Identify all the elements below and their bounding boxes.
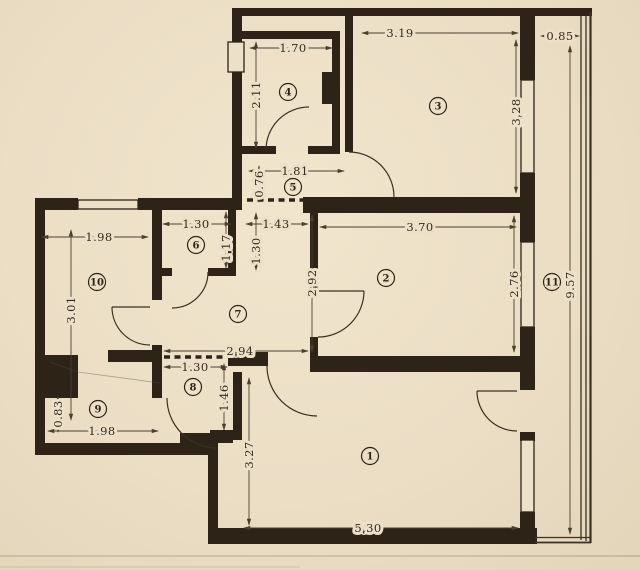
door-arc-room6 (172, 272, 208, 308)
dimension-label: 1.30 (182, 217, 209, 231)
room-number-text: 4 (285, 88, 292, 99)
room-number-11: 11 (544, 274, 561, 291)
dimension-label: 2.76 (507, 270, 521, 297)
door-arc-room10 (112, 307, 150, 345)
dimension-label: 1.30 (181, 360, 208, 374)
dimension-label: 1.98 (88, 424, 115, 438)
room-number-3: 3 (430, 98, 447, 115)
door-arc-room1-hall (267, 366, 317, 416)
room-number-7: 7 (230, 306, 247, 323)
dimension-label: 2.92 (305, 269, 319, 296)
dimension-label: 1.43 (262, 217, 289, 231)
dimension-label: 5.30 (354, 521, 381, 535)
dimension-label: 1.17 (219, 234, 233, 261)
dimension-label: 2.11 (249, 81, 263, 108)
room-number-text: 9 (95, 405, 102, 416)
room-number-9: 9 (90, 401, 107, 418)
floor-plan: 1.703.190.852.113.289.571.810.761.301.43… (0, 0, 640, 570)
dimension-label: 2.94 (226, 344, 253, 358)
dimension-label: 3.70 (406, 220, 433, 234)
room-number-6: 6 (188, 237, 205, 254)
dimension-label: 3.28 (509, 98, 523, 125)
dimension-label: 1.70 (279, 41, 306, 55)
room-number-5: 5 (285, 179, 302, 196)
room-number-2: 2 (378, 270, 395, 287)
dimension-label: 0.76 (252, 170, 266, 197)
dimension-label: 3.19 (386, 26, 413, 40)
window-room4 (228, 42, 244, 72)
room-number-8: 8 (185, 379, 202, 396)
dimension-label: 1.81 (281, 164, 308, 178)
dimension-label: 0.83 (51, 400, 65, 427)
room-number-text: 5 (290, 183, 297, 194)
dimension-label: 3.01 (64, 296, 78, 323)
dimension-label: 1.30 (249, 237, 263, 264)
room-number-10: 10 (89, 274, 106, 291)
dimension-label: 9.57 (563, 271, 577, 298)
room-number-text: 7 (235, 310, 242, 321)
window-room2 (521, 242, 534, 327)
dimension-label: 3.27 (242, 441, 256, 468)
labels-layer: 1.703.190.852.113.289.571.810.761.301.43… (51, 26, 577, 535)
room-number-text: 11 (545, 278, 559, 289)
window-room10 (78, 200, 138, 209)
window-room1 (521, 440, 534, 512)
room-number-text: 8 (190, 383, 197, 394)
dimension-label: 0.85 (546, 29, 573, 43)
room-number-text: 6 (193, 241, 200, 252)
dimension-label: 1.46 (217, 384, 231, 411)
room-number-1: 1 (362, 448, 379, 465)
room-number-text: 3 (435, 102, 442, 113)
room-number-text: 10 (90, 278, 104, 289)
floor-plan-scan: 1.703.190.852.113.289.571.810.761.301.43… (0, 0, 640, 570)
room-number-text: 1 (367, 452, 374, 463)
door-arc-room2 (318, 291, 364, 337)
door-arc-room3 (349, 152, 394, 197)
door-arc-room1-balcony (477, 391, 517, 431)
room-number-text: 2 (383, 274, 390, 285)
door-arc-room4 (266, 107, 309, 150)
room-number-4: 4 (280, 84, 297, 101)
dimension-label: 1.98 (85, 230, 112, 244)
